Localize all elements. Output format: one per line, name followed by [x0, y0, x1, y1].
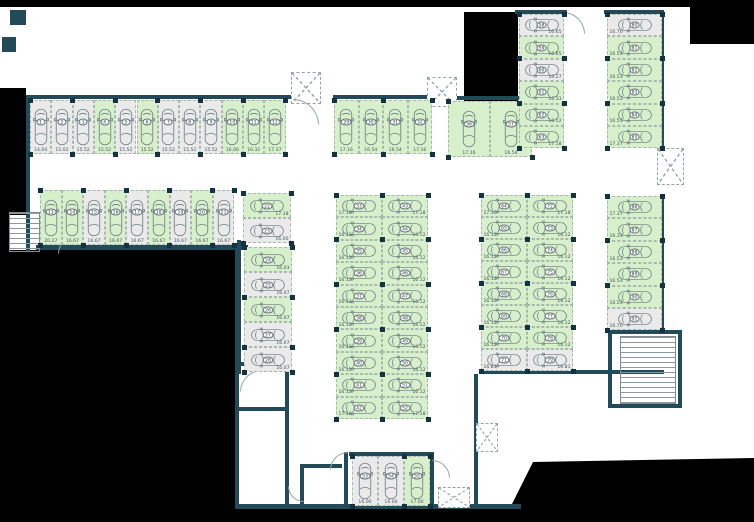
stall-number: 49 — [400, 337, 411, 344]
stall-dimension: 16.12 — [484, 255, 497, 260]
stall-number: 7 — [164, 118, 173, 125]
stall-dimension: 16.12 — [412, 390, 425, 395]
parking-stall-32[interactable]: 3217.16 — [408, 100, 433, 154]
stall-number: 34 — [354, 225, 365, 232]
parking-stall-89[interactable]: 8916.53 — [607, 263, 662, 285]
parking-stall-50[interactable]: 5016.12 — [382, 352, 428, 374]
column-dot — [428, 504, 433, 509]
car-icon — [267, 107, 283, 147]
parking-stall-71[interactable]: 7116.81 — [481, 349, 527, 371]
column-dot — [381, 152, 386, 157]
column-dot — [479, 369, 484, 374]
column-dot — [289, 191, 294, 196]
exterior-mask — [0, 88, 26, 215]
stall-number: 9 — [207, 118, 216, 125]
column-dot — [562, 56, 567, 61]
stall-dimension: 15.52 — [180, 148, 199, 153]
column-dot — [426, 327, 431, 332]
stall-number: 82 — [629, 66, 640, 73]
parking-stall-44[interactable]: 4416.12 — [382, 217, 428, 239]
stall-dimension: 17.18 — [548, 142, 561, 147]
car-icon — [118, 107, 134, 147]
column-dot — [402, 504, 407, 509]
column-dot — [426, 237, 431, 242]
parking-stall-52[interactable]: 5217.18 — [382, 397, 428, 419]
shaft-symbol — [438, 487, 470, 508]
column-dot — [525, 193, 530, 198]
wall — [608, 330, 612, 408]
car-icon — [129, 198, 145, 238]
stall-dimension: 17.18 — [412, 211, 425, 216]
column-dot — [380, 237, 385, 242]
stall-number: 35 — [354, 247, 365, 254]
door-arc — [432, 460, 450, 478]
parking-stall-35[interactable]: 3516.12 — [336, 240, 382, 262]
parking-stall-2[interactable]: 215.02 — [51, 100, 72, 154]
parking-stall-77[interactable]: 7716.12 — [527, 305, 573, 327]
parking-stall-75[interactable]: 7516.12 — [527, 261, 573, 283]
parking-stall-45[interactable]: 4516.12 — [382, 240, 428, 262]
stall-number: 2 — [57, 118, 66, 125]
parking-stall-83[interactable]: 8316.53 — [607, 81, 662, 103]
column-dot — [562, 146, 567, 151]
stall-number: 18 — [153, 209, 164, 216]
stall-dimension: 16.12 — [339, 345, 352, 350]
parking-stall-21[interactable]: 2116.67 — [213, 190, 235, 245]
stall-dimension: 16.70 — [610, 324, 623, 329]
column-dot — [605, 56, 610, 61]
stall-dimension: 16.67 — [127, 239, 147, 244]
column-dot — [571, 193, 576, 198]
parking-stall-46[interactable]: 4616.12 — [382, 262, 428, 284]
stall-dimension: 16.67 — [171, 239, 191, 244]
parking-stall-78[interactable]: 7816.12 — [527, 327, 573, 349]
stall-dimension: 16.03 — [276, 266, 289, 271]
stall-number: 89 — [629, 271, 640, 278]
parking-stall-29[interactable]: 2917.16 — [334, 100, 359, 154]
parking-stall-74[interactable]: 7416.12 — [527, 239, 573, 261]
stall-number: 23 — [262, 227, 273, 234]
stall-dimension: 16.33 — [610, 234, 623, 239]
car-icon — [357, 461, 373, 501]
column-dot — [81, 243, 86, 248]
wall — [678, 330, 682, 408]
door-arc — [330, 452, 348, 470]
parking-stall-5[interactable]: 515.52 — [115, 100, 136, 154]
column-dot — [660, 328, 665, 333]
stall-dimension: 16.12 — [484, 233, 497, 238]
column-dot — [446, 155, 451, 160]
stairs-icon — [9, 212, 40, 252]
exterior-mask — [0, 215, 9, 252]
column-dot — [517, 56, 522, 61]
column-dot — [38, 243, 43, 248]
stall-dimension: 16.12 — [557, 277, 570, 282]
stall-dimension: 20.27 — [41, 239, 61, 244]
parking-stall-90[interactable]: 9016.53 — [607, 286, 662, 308]
stall-number: 71 — [499, 357, 510, 364]
car-icon — [216, 198, 232, 238]
parking-stall-68[interactable]: 6816.12 — [481, 283, 527, 305]
stall-number: 56 — [464, 120, 475, 127]
stall-dimension: 16.67 — [214, 239, 234, 244]
stall-number: 11 — [248, 118, 259, 125]
stall-dimension: 16.12 — [339, 233, 352, 238]
column-dot — [241, 98, 246, 103]
parking-stall-85[interactable]: 8517.37 — [607, 126, 662, 148]
parking-stall-9[interactable]: 915.52 — [200, 100, 221, 154]
parking-stall-54[interactable]: 5416.00 — [378, 456, 404, 506]
stall-number: 77 — [545, 313, 556, 320]
parking-stall-76[interactable]: 7616.12 — [527, 283, 573, 305]
parking-stall-4[interactable]: 415.52 — [94, 100, 115, 154]
parking-stall-79[interactable]: 7916.81 — [527, 349, 573, 371]
stall-number: 19 — [175, 209, 186, 216]
stall-number: 3 — [79, 118, 88, 125]
column-dot — [28, 98, 33, 103]
parking-stall-63[interactable]: 6317.18 — [519, 126, 564, 148]
column-dot — [605, 101, 610, 106]
parking-stall-65[interactable]: 6516.12 — [481, 217, 527, 239]
parking-stall-17[interactable]: 1716.67 — [126, 190, 148, 245]
stall-dimension: 16.12 — [557, 321, 570, 326]
car-icon — [151, 198, 167, 238]
column-dot — [605, 283, 610, 288]
car-icon — [33, 107, 49, 147]
wall — [28, 95, 294, 99]
parking-stall-60[interactable]: 6016.27 — [519, 59, 564, 81]
parking-stall-34[interactable]: 3416.12 — [336, 217, 382, 239]
stall-dimension: 15.52 — [74, 148, 93, 153]
parking-stall-20[interactable]: 2016.67 — [191, 190, 213, 245]
parking-stall-28[interactable]: 2816.07 — [244, 347, 292, 372]
stall-number: 63 — [536, 134, 547, 141]
stall-dimension: 16.07 — [276, 316, 289, 321]
parking-stall-48[interactable]: 4816.12 — [382, 307, 428, 329]
stall-dimension: 16.12 — [557, 233, 570, 238]
parking-stall-25[interactable]: 2516.07 — [244, 272, 292, 297]
parking-stall-58[interactable]: 5816.65 — [519, 14, 564, 36]
stall-number: 54 — [386, 473, 397, 480]
parking-stall-73[interactable]: 7316.12 — [527, 217, 573, 239]
stall-dimension: 16.65 — [548, 52, 561, 57]
parking-stall-82[interactable]: 8216.53 — [607, 59, 662, 81]
column-dot — [402, 454, 407, 459]
stall-number: 12 — [270, 118, 281, 125]
stall-dimension: 14.04 — [31, 148, 50, 153]
parking-stall-16[interactable]: 1616.67 — [105, 190, 127, 245]
parking-stall-70[interactable]: 7016.12 — [481, 327, 527, 349]
column-dot — [660, 194, 665, 199]
parking-stall-31[interactable]: 3116.54 — [383, 100, 408, 154]
parking-stall-47[interactable]: 4716.12 — [382, 285, 428, 307]
car-icon — [203, 107, 219, 147]
stall-number: 59 — [536, 44, 547, 51]
column-dot — [426, 282, 431, 287]
stall-dimension: 16.12 — [339, 390, 352, 395]
stall-number: 47 — [400, 292, 411, 299]
parking-stall-15[interactable]: 1516.67 — [83, 190, 105, 245]
column-dot — [428, 454, 433, 459]
stall-dimension: 17.00 — [405, 500, 429, 505]
column-dot — [562, 12, 567, 17]
column-dot — [232, 188, 237, 193]
column-dot — [525, 281, 530, 286]
column-dot — [660, 146, 665, 151]
parking-stall-72[interactable]: 7217.18 — [527, 195, 573, 217]
car-icon — [160, 107, 176, 147]
stall-number: 62 — [536, 111, 547, 118]
parking-stall-3[interactable]: 315.52 — [73, 100, 94, 154]
column-dot — [571, 325, 576, 330]
stall-dimension: 16.53 — [610, 301, 623, 306]
column-dot — [290, 370, 295, 375]
stairs-icon — [620, 336, 676, 404]
parking-stall-87[interactable]: 8716.33 — [607, 218, 662, 240]
stall-number: 32 — [414, 118, 425, 125]
column-dot — [28, 152, 33, 157]
stall-number: 26 — [263, 306, 274, 313]
stall-dimension: 16.65 — [548, 30, 561, 35]
parking-stall-91[interactable]: 9116.70 — [607, 308, 662, 330]
column-dot — [525, 369, 530, 374]
stall-number: 5 — [121, 118, 130, 125]
car-icon — [383, 461, 399, 501]
parking-stall-43[interactable]: 4317.18 — [382, 195, 428, 217]
column-dot — [332, 152, 337, 157]
parking-stall-12[interactable]: 1217.37 — [264, 100, 285, 154]
column-dot — [241, 191, 246, 196]
stall-number: 22 — [262, 202, 273, 209]
stall-number: 83 — [629, 89, 640, 96]
parking-stall-11[interactable]: 1116.32 — [243, 100, 264, 154]
stall-number: 60 — [536, 66, 547, 73]
stall-dimension: 16.53 — [610, 257, 623, 262]
column-dot — [283, 152, 288, 157]
wall — [2, 37, 16, 52]
column-dot — [334, 193, 339, 198]
column-dot — [479, 325, 484, 330]
parking-stall-23[interactable]: 2316.00 — [243, 218, 291, 243]
stall-dimension: 16.70 — [610, 30, 623, 35]
column-dot — [241, 152, 246, 157]
parking-stall-62[interactable]: 6216.12 — [519, 104, 564, 126]
column-dot — [660, 283, 665, 288]
stall-number: 46 — [400, 270, 411, 277]
exterior-mask — [500, 458, 754, 522]
column-dot — [380, 372, 385, 377]
column-dot — [605, 194, 610, 199]
parking-stall-67[interactable]: 6716.12 — [481, 261, 527, 283]
parking-stall-26[interactable]: 2616.07 — [244, 297, 292, 322]
parking-stall-86[interactable]: 8617.37 — [607, 196, 662, 218]
parking-stall-6[interactable]: 615.52 — [137, 100, 158, 154]
stall-number: 51 — [400, 382, 411, 389]
stall-number: 70 — [499, 335, 510, 342]
car-icon — [54, 107, 70, 147]
stall-number: 53 — [360, 473, 371, 480]
stall-number: 36 — [354, 270, 365, 277]
car-icon — [43, 198, 59, 238]
parking-stall-24[interactable]: 2416.03 — [244, 247, 292, 272]
shaft-symbol — [476, 423, 498, 452]
column-dot — [479, 237, 484, 242]
column-dot — [242, 370, 247, 375]
stall-dimension: 16.12 — [412, 256, 425, 261]
stall-number: 29 — [341, 118, 352, 125]
parking-stall-49[interactable]: 4916.12 — [382, 329, 428, 351]
stall-number: 74 — [545, 247, 556, 254]
parking-stall-38[interactable]: 3816.12 — [336, 307, 382, 329]
parking-stall-33[interactable]: 3317.18 — [336, 195, 382, 217]
stall-dimension: 16.12 — [412, 300, 425, 305]
parking-stall-36[interactable]: 3616.12 — [336, 262, 382, 284]
parking-stall-30[interactable]: 3016.54 — [359, 100, 384, 154]
parking-stall-41[interactable]: 4116.12 — [336, 374, 382, 396]
stall-number: 58 — [536, 22, 547, 29]
column-dot — [571, 369, 576, 374]
column-dot — [290, 295, 295, 300]
parking-stall-80[interactable]: 8016.70 — [607, 14, 662, 36]
stall-dimension: 16.53 — [610, 52, 623, 57]
stall-number: 4 — [100, 118, 109, 125]
column-dot — [660, 238, 665, 243]
parking-stall-8[interactable]: 815.52 — [179, 100, 200, 154]
parking-stall-61[interactable]: 6116.33 — [519, 81, 564, 103]
parking-stall-64[interactable]: 6417.30 — [481, 195, 527, 217]
stall-dimension: 15.52 — [95, 148, 114, 153]
car-icon — [461, 109, 477, 149]
stall-dimension: 16.67 — [63, 239, 83, 244]
stall-number: 30 — [365, 118, 376, 125]
stall-dimension: 16.67 — [106, 239, 126, 244]
stall-number: 44 — [400, 225, 411, 232]
stall-number: 37 — [354, 292, 365, 299]
parking-stall-19[interactable]: 1916.67 — [170, 190, 192, 245]
parking-stall-42[interactable]: 4217.18 — [336, 397, 382, 419]
parking-stall-69[interactable]: 6916.12 — [481, 305, 527, 327]
parking-stall-66[interactable]: 6616.12 — [481, 239, 527, 261]
stall-dimension: 15.52 — [138, 148, 157, 153]
stall-number: 61 — [536, 89, 547, 96]
car-icon — [172, 198, 188, 238]
column-dot — [479, 281, 484, 286]
parking-stall-37[interactable]: 3716.12 — [336, 285, 382, 307]
stall-number: 64 — [499, 203, 510, 210]
parking-stall-39[interactable]: 3916.12 — [336, 329, 382, 351]
car-icon — [224, 107, 240, 147]
stall-number: 50 — [400, 359, 411, 366]
column-dot — [381, 98, 386, 103]
parking-stall-84[interactable]: 8416.53 — [607, 104, 662, 126]
column-dot — [242, 245, 247, 250]
stall-dimension: 15.02 — [52, 148, 71, 153]
column-dot — [198, 152, 203, 157]
stall-dimension: 17.37 — [610, 212, 623, 217]
stall-dimension: 16.12 — [339, 278, 352, 283]
stall-number: 41 — [354, 382, 365, 389]
parking-stall-55[interactable]: 5517.00 — [404, 456, 430, 506]
column-dot — [350, 504, 355, 509]
stall-dimension: 16.12 — [557, 343, 570, 348]
car-icon — [75, 107, 91, 147]
parking-stall-10[interactable]: 1016.06 — [222, 100, 243, 154]
parking-stall-14[interactable]: 1416.67 — [62, 190, 84, 245]
stall-number: 17 — [132, 209, 143, 216]
parking-stall-59[interactable]: 5916.65 — [519, 36, 564, 58]
parking-stall-53[interactable]: 5316.00 — [352, 456, 378, 506]
stall-dimension: 16.67 — [84, 239, 104, 244]
stall-dimension: 16.53 — [610, 97, 623, 102]
column-dot — [113, 98, 118, 103]
column-dot — [660, 56, 665, 61]
stall-number: 39 — [354, 337, 365, 344]
column-dot — [210, 188, 215, 193]
car-icon — [182, 107, 198, 147]
stall-dimension: 16.12 — [339, 300, 352, 305]
stall-number: 31 — [390, 118, 401, 125]
parking-stall-18[interactable]: 1816.67 — [148, 190, 170, 245]
parking-stall-7[interactable]: 715.52 — [158, 100, 179, 154]
column-dot — [660, 12, 665, 17]
stall-number: 85 — [629, 134, 640, 141]
stall-number: 67 — [499, 269, 510, 276]
stall-number: 75 — [545, 269, 556, 276]
stall-number: 21 — [218, 209, 229, 216]
column-dot — [517, 12, 522, 17]
parking-stall-56[interactable]: 5617.16 — [448, 101, 490, 157]
stall-dimension: 16.53 — [610, 75, 623, 80]
column-dot — [334, 327, 339, 332]
stall-number: 68 — [499, 291, 510, 298]
parking-stall-13[interactable]: 1320.27 — [40, 190, 62, 245]
exterior-mask — [0, 0, 754, 7]
parking-stall-51[interactable]: 5116.12 — [382, 374, 428, 396]
stall-dimension: 16.54 — [384, 148, 407, 153]
parking-stall-81[interactable]: 8116.53 — [607, 36, 662, 58]
column-dot — [380, 282, 385, 287]
stall-number: 80 — [629, 22, 640, 29]
column-dot — [198, 98, 203, 103]
parking-stall-88[interactable]: 8816.53 — [607, 241, 662, 263]
stall-dimension: 17.30 — [484, 211, 497, 216]
stall-dimension: 16.12 — [339, 323, 352, 328]
stall-number: 84 — [629, 111, 640, 118]
stall-number: 40 — [354, 359, 365, 366]
stall-dimension: 15.52 — [116, 148, 135, 153]
stall-dimension: 15.52 — [201, 148, 220, 153]
parking-stall-1[interactable]: 114.04 — [30, 100, 51, 154]
stall-number: 57 — [506, 120, 517, 127]
stall-dimension: 16.12 — [339, 368, 352, 373]
column-dot — [334, 372, 339, 377]
column-dot — [517, 101, 522, 106]
stall-dimension: 16.67 — [192, 239, 212, 244]
column-dot — [479, 193, 484, 198]
stall-dimension: 16.12 — [484, 277, 497, 282]
stall-dimension: 17.18 — [339, 211, 352, 216]
column-dot — [517, 146, 522, 151]
column-dot — [426, 193, 431, 198]
stall-number: 38 — [354, 315, 365, 322]
parking-stall-40[interactable]: 4016.12 — [336, 352, 382, 374]
exterior-mask — [464, 12, 518, 104]
parking-stall-22[interactable]: 2217.18 — [243, 193, 291, 218]
column-dot — [380, 193, 385, 198]
parking-stall-27[interactable]: 2716.07 — [244, 322, 292, 347]
stall-dimension: 16.53 — [610, 279, 623, 284]
stall-dimension: 17.18 — [412, 412, 425, 417]
